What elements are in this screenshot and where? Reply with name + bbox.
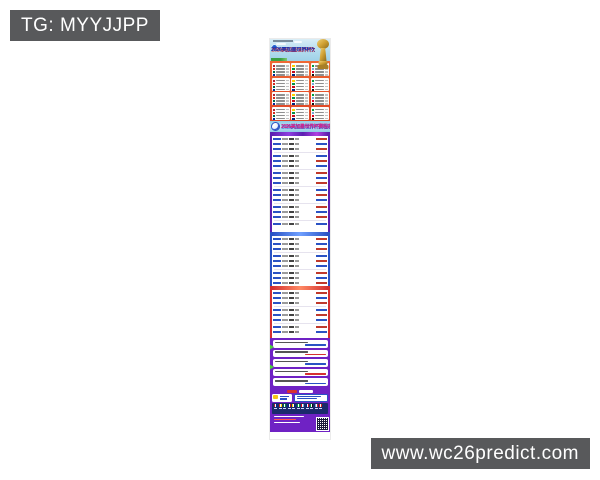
border-accent	[328, 200, 330, 208]
team-row	[312, 103, 328, 105]
info-box	[273, 378, 328, 386]
match-venue-text	[295, 206, 299, 208]
groups-grid	[270, 61, 330, 121]
match-teams-text	[289, 223, 294, 225]
team-name-text	[315, 86, 324, 88]
match-date-text	[273, 326, 281, 328]
match-time-text	[282, 309, 288, 311]
border-accent	[328, 243, 330, 251]
border-accent	[270, 212, 272, 220]
team-flag-icon	[273, 68, 276, 70]
match-result-text	[316, 194, 327, 197]
team-row	[273, 112, 289, 114]
table-header-bar	[272, 132, 328, 136]
match-result-text	[316, 189, 327, 192]
match-result-text	[316, 165, 327, 168]
team-name-text	[315, 109, 324, 111]
team-odds-text	[286, 83, 289, 85]
match-result-text	[316, 282, 327, 285]
group-box	[291, 78, 309, 91]
match-row	[273, 188, 327, 192]
team-odds-text	[305, 65, 308, 67]
match-date-text	[273, 160, 281, 162]
team-name-text	[276, 89, 285, 91]
match-time-text	[282, 255, 288, 257]
team-flag-icon	[312, 94, 315, 96]
match-time-text	[282, 314, 288, 316]
country-flag-icon	[283, 404, 286, 407]
match-teams-text	[289, 260, 294, 262]
match-result-text	[316, 260, 327, 263]
team-row	[292, 94, 308, 96]
match-teams-text	[289, 326, 294, 328]
team-name-text	[296, 65, 305, 67]
match-row	[273, 247, 327, 251]
match-teams-text	[289, 189, 294, 191]
flag-label-text	[288, 408, 291, 409]
match-row	[273, 330, 327, 334]
match-date-text	[273, 302, 281, 304]
match-time-text	[282, 189, 288, 191]
match-date-text	[273, 182, 281, 184]
team-flag-icon	[312, 112, 315, 114]
team-name-text	[276, 94, 285, 96]
match-date-text	[273, 155, 281, 157]
match-result-text	[316, 143, 327, 146]
match-teams-text	[289, 265, 294, 267]
team-flag-icon	[312, 71, 315, 73]
match-date-text	[273, 223, 281, 225]
text-line	[297, 398, 317, 399]
match-time-text	[282, 326, 288, 328]
match-result-text	[316, 148, 327, 151]
team-flag-icon	[273, 89, 276, 91]
match-venue-text	[295, 189, 299, 191]
team-row	[312, 109, 328, 111]
match-venue-text	[295, 314, 299, 316]
flag-label-text	[279, 408, 282, 409]
team-flag-icon	[273, 65, 276, 67]
team-name-text	[315, 100, 324, 102]
team-row	[312, 97, 328, 99]
match-teams-text	[289, 255, 294, 257]
match-date-text	[273, 277, 281, 279]
match-row	[273, 137, 327, 141]
match-result-text	[316, 155, 327, 158]
flag-label-text	[310, 408, 313, 409]
match-teams-text	[289, 143, 294, 145]
match-teams-text	[289, 194, 294, 196]
team-odds-text	[305, 89, 308, 91]
team-flag-icon	[273, 97, 276, 99]
team-odds-text	[305, 112, 308, 114]
team-flag-icon	[292, 89, 295, 91]
group-box	[311, 92, 329, 105]
team-flag-icon	[292, 103, 295, 105]
team-odds-text	[286, 112, 289, 114]
match-date-text	[273, 260, 281, 262]
team-flag-icon	[292, 68, 295, 70]
match-result-text	[316, 211, 327, 214]
group-box	[291, 107, 309, 120]
info-box	[273, 340, 328, 348]
match-time-text	[282, 182, 288, 184]
match-time-text	[282, 302, 288, 304]
match-venue-text	[295, 319, 299, 321]
team-name-text	[296, 94, 305, 96]
match-row	[273, 264, 327, 268]
match-venue-text	[295, 177, 299, 179]
team-name-text	[276, 118, 285, 120]
website-watermark-label: www.wc26predict.com	[371, 438, 590, 469]
info-text-line	[275, 351, 308, 353]
match-date-text	[273, 206, 281, 208]
match-result-text	[316, 265, 327, 268]
group-box	[272, 92, 290, 105]
team-flag-icon	[273, 74, 276, 76]
row-separator	[274, 152, 326, 153]
team-flag-icon	[273, 112, 276, 114]
match-venue-text	[295, 211, 299, 213]
match-result-text	[316, 319, 327, 322]
country-flag-icon	[310, 404, 313, 407]
team-row	[273, 86, 289, 88]
match-time-text	[282, 148, 288, 150]
team-flag-icon	[273, 100, 276, 102]
team-flag-icon	[312, 68, 315, 70]
group-box	[272, 63, 290, 76]
match-result-text	[316, 302, 327, 305]
flag-item	[310, 404, 313, 409]
group-box	[311, 78, 329, 91]
team-odds-text	[325, 89, 328, 91]
match-date-text	[273, 211, 281, 213]
row-separator	[274, 186, 326, 187]
match-venue-text	[295, 160, 299, 162]
match-result-text	[316, 223, 327, 226]
table-header-bar	[272, 286, 328, 290]
team-name-text	[296, 109, 305, 111]
team-row	[273, 103, 289, 105]
team-flag-icon	[312, 80, 315, 82]
match-date-text	[273, 309, 281, 311]
team-odds-text	[305, 118, 308, 120]
team-row	[273, 74, 289, 76]
team-odds-text	[286, 100, 289, 102]
team-row	[292, 89, 308, 91]
flag-item	[301, 404, 304, 409]
team-name-text	[296, 89, 305, 91]
match-time-text	[282, 206, 288, 208]
team-name-text	[296, 80, 305, 82]
border-accent	[328, 317, 330, 325]
info-highlight-line	[305, 363, 325, 365]
team-odds-text	[325, 83, 328, 85]
team-odds-text	[286, 94, 289, 96]
info-text-line	[275, 371, 308, 373]
team-odds-text	[305, 86, 308, 88]
match-teams-text	[289, 199, 294, 201]
match-venue-text	[295, 272, 299, 274]
team-flag-icon	[292, 109, 295, 111]
team-name-text	[296, 74, 305, 76]
match-result-text	[316, 172, 327, 175]
match-row	[273, 181, 327, 185]
team-row	[273, 80, 289, 82]
match-date-text	[273, 216, 281, 218]
flag-label-text	[319, 408, 322, 409]
team-row	[292, 74, 308, 76]
team-odds-text	[305, 97, 308, 99]
match-teams-text	[289, 243, 294, 245]
team-name-text	[276, 100, 285, 102]
info-box	[273, 350, 328, 358]
team-odds-text	[286, 71, 289, 73]
footer-note-box	[294, 394, 328, 402]
match-teams-text	[289, 272, 294, 274]
border-accent	[270, 184, 272, 192]
team-flag-icon	[312, 83, 315, 85]
flag-label-text	[292, 408, 295, 409]
match-date-text	[273, 255, 281, 257]
team-name-text	[296, 83, 305, 85]
team-flag-icon	[273, 86, 276, 88]
match-row	[273, 308, 327, 312]
match-time-text	[282, 223, 288, 225]
match-time-text	[282, 265, 288, 267]
flags-strip	[272, 403, 328, 414]
team-row	[292, 83, 308, 85]
row-separator	[274, 169, 326, 170]
team-flag-icon	[292, 115, 295, 117]
team-name-text	[276, 71, 285, 73]
country-flag-icon	[306, 404, 309, 407]
team-flag-icon	[312, 109, 315, 111]
match-teams-text	[289, 165, 294, 167]
match-row	[273, 198, 327, 202]
match-result-text	[316, 243, 327, 246]
team-name-text	[296, 97, 305, 99]
match-time-text	[282, 143, 288, 145]
team-odds-text	[305, 115, 308, 117]
flag-label-text	[274, 408, 277, 409]
team-flag-icon	[273, 118, 276, 120]
team-row	[312, 89, 328, 91]
match-date-text	[273, 177, 281, 179]
match-row	[273, 215, 327, 219]
group-box	[272, 107, 290, 120]
match-teams-text	[289, 309, 294, 311]
team-name-text	[296, 86, 305, 88]
team-name-text	[315, 80, 324, 82]
poster-schedule-title: 2026美加墨世界杯赛程表	[281, 123, 330, 130]
row-separator	[274, 269, 326, 270]
team-name-text	[276, 115, 285, 117]
match-teams-text	[289, 182, 294, 184]
match-venue-text	[295, 277, 299, 279]
match-result-text	[316, 272, 327, 275]
team-flag-icon	[292, 83, 295, 85]
match-row	[273, 291, 327, 295]
team-odds-text	[325, 80, 328, 82]
match-time-text	[282, 155, 288, 157]
team-flag-icon	[312, 86, 315, 88]
match-result-text	[316, 255, 327, 258]
team-odds-text	[325, 94, 328, 96]
team-name-text	[296, 100, 305, 102]
country-flag-icon	[292, 404, 295, 407]
match-venue-text	[295, 223, 299, 225]
match-row	[273, 301, 327, 305]
team-flag-icon	[312, 103, 315, 105]
match-result-text	[316, 238, 327, 241]
team-name-text	[276, 74, 285, 76]
match-venue-text	[295, 155, 299, 157]
match-row	[273, 281, 327, 285]
team-odds-text	[325, 100, 328, 102]
team-odds-text	[325, 112, 328, 114]
info-text-line	[275, 342, 308, 344]
team-row	[292, 103, 308, 105]
match-date-text	[273, 292, 281, 294]
match-teams-text	[289, 177, 294, 179]
border-accent	[328, 160, 330, 168]
team-name-text	[296, 115, 305, 117]
cloud-decoration	[294, 41, 302, 43]
flag-item	[283, 404, 286, 409]
red-pill-decoration	[287, 390, 297, 393]
flag-label-text	[306, 408, 309, 409]
match-row	[273, 318, 327, 322]
team-name-text	[315, 74, 324, 76]
team-odds-text	[325, 97, 328, 99]
country-flag-icon	[301, 404, 304, 407]
team-name-text	[276, 65, 285, 67]
team-odds-text	[305, 100, 308, 102]
info-box	[273, 369, 328, 377]
team-odds-text	[286, 97, 289, 99]
match-teams-text	[289, 331, 294, 333]
match-row	[273, 193, 327, 197]
match-time-text	[282, 211, 288, 213]
match-date-text	[273, 272, 281, 274]
info-highlight-line	[305, 354, 325, 356]
footer-info-row	[272, 394, 328, 402]
match-teams-text	[289, 277, 294, 279]
match-date-text	[273, 189, 281, 191]
match-date-text	[273, 194, 281, 196]
team-odds-text	[286, 68, 289, 70]
number-badge	[273, 395, 278, 399]
match-teams-text	[289, 314, 294, 316]
team-name-text	[296, 68, 305, 70]
match-teams-text	[289, 138, 294, 140]
team-row	[312, 86, 328, 88]
match-date-text	[273, 265, 281, 267]
flag-item	[315, 404, 318, 409]
match-teams-text	[289, 292, 294, 294]
match-time-text	[282, 319, 288, 321]
match-venue-text	[295, 172, 299, 174]
team-name-text	[276, 68, 285, 70]
match-date-text	[273, 199, 281, 201]
flag-label-text	[301, 408, 304, 409]
team-flag-icon	[312, 74, 315, 76]
team-name-text	[276, 103, 285, 105]
team-row	[312, 80, 328, 82]
match-result-text	[316, 199, 327, 202]
match-result-text	[316, 138, 327, 141]
flag-item	[292, 404, 295, 409]
border-accent	[270, 150, 272, 158]
team-name-text	[315, 89, 324, 91]
team-row	[312, 112, 328, 114]
match-row	[273, 210, 327, 214]
team-flag-icon	[273, 109, 276, 111]
match-date-text	[273, 138, 281, 140]
match-date-text	[273, 297, 281, 299]
team-odds-text	[305, 103, 308, 105]
match-time-text	[282, 160, 288, 162]
team-flag-icon	[273, 83, 276, 85]
match-venue-text	[295, 282, 299, 284]
team-odds-text	[305, 71, 308, 73]
header-small-text	[273, 40, 293, 42]
match-row	[273, 176, 327, 180]
info-box	[273, 359, 328, 367]
team-row	[292, 86, 308, 88]
team-name-text	[315, 94, 324, 96]
team-row	[312, 115, 328, 117]
match-result-text	[316, 314, 327, 317]
poster-footer	[270, 388, 330, 432]
team-row	[292, 68, 308, 70]
flag-item	[306, 404, 309, 409]
match-date-text	[273, 314, 281, 316]
team-name-text	[296, 118, 305, 120]
match-teams-text	[289, 172, 294, 174]
match-date-text	[273, 148, 281, 150]
flag-item	[319, 404, 322, 409]
info-highlight-line	[305, 373, 325, 375]
match-row	[273, 164, 327, 168]
match-venue-text	[295, 255, 299, 257]
team-odds-text	[305, 68, 308, 70]
team-flag-icon	[292, 80, 295, 82]
team-row	[292, 118, 308, 120]
match-result-text	[316, 182, 327, 185]
match-time-text	[282, 216, 288, 218]
match-row	[273, 205, 327, 209]
match-time-text	[282, 282, 288, 284]
text-line	[297, 396, 321, 397]
team-flag-icon	[292, 118, 295, 120]
country-flag-icon	[288, 404, 291, 407]
match-row	[273, 254, 327, 258]
match-row	[273, 147, 327, 151]
match-date-text	[273, 282, 281, 284]
team-name-text	[315, 71, 324, 73]
team-odds-text	[325, 103, 328, 105]
team-name-text	[315, 97, 324, 99]
match-time-text	[282, 172, 288, 174]
match-venue-text	[295, 148, 299, 150]
match-date-text	[273, 243, 281, 245]
white-pill-decoration	[299, 390, 313, 393]
team-flag-icon	[292, 112, 295, 114]
table-header-bar	[272, 232, 328, 236]
match-teams-text	[289, 302, 294, 304]
